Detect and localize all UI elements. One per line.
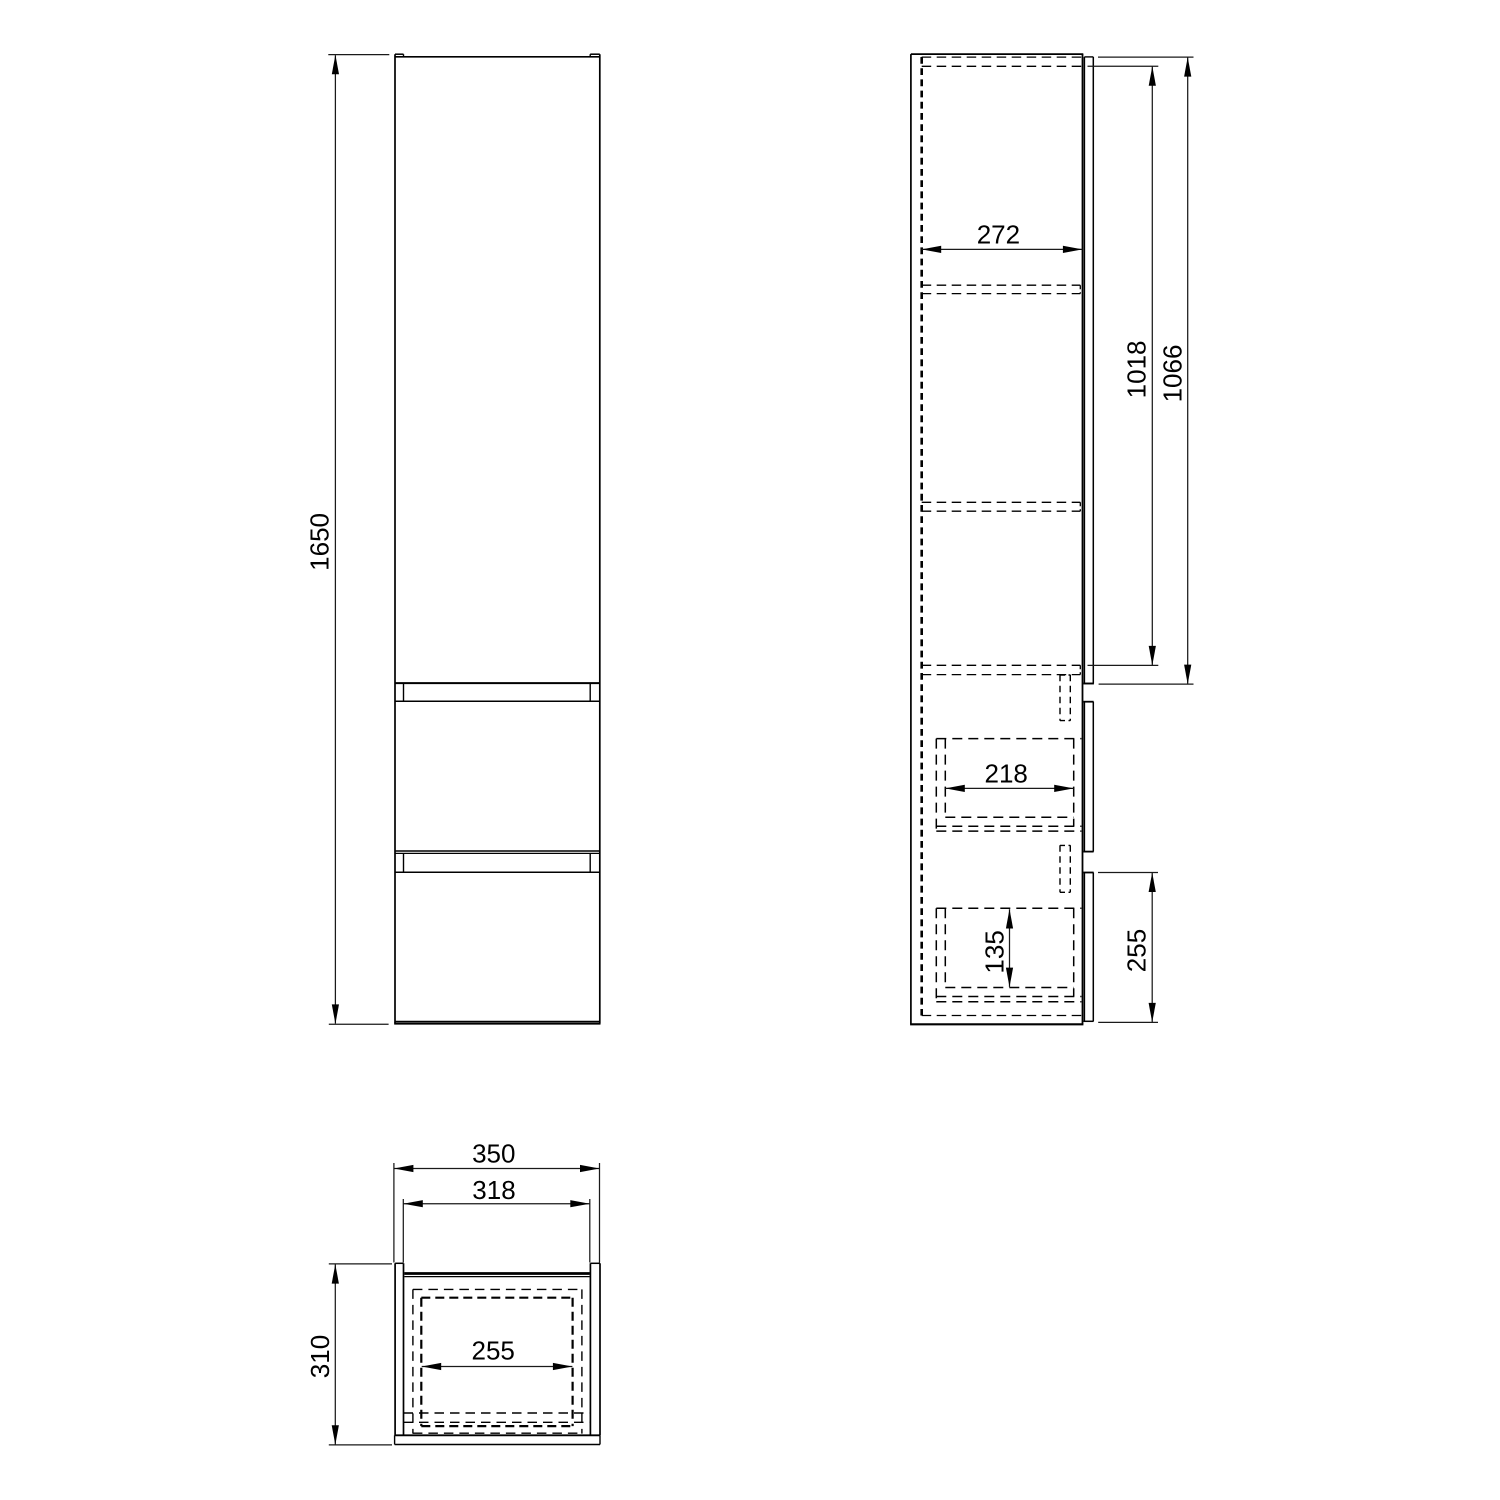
svg-text:255: 255 (1122, 929, 1152, 972)
svg-text:350: 350 (472, 1138, 515, 1168)
svg-text:1650: 1650 (304, 513, 334, 571)
svg-text:218: 218 (985, 759, 1028, 789)
svg-text:272: 272 (977, 220, 1020, 250)
svg-text:255: 255 (472, 1336, 515, 1366)
svg-text:135: 135 (980, 930, 1010, 973)
svg-text:1018: 1018 (1122, 340, 1152, 398)
svg-text:1066: 1066 (1158, 345, 1188, 403)
svg-text:310: 310 (305, 1335, 335, 1378)
svg-text:318: 318 (472, 1175, 515, 1205)
